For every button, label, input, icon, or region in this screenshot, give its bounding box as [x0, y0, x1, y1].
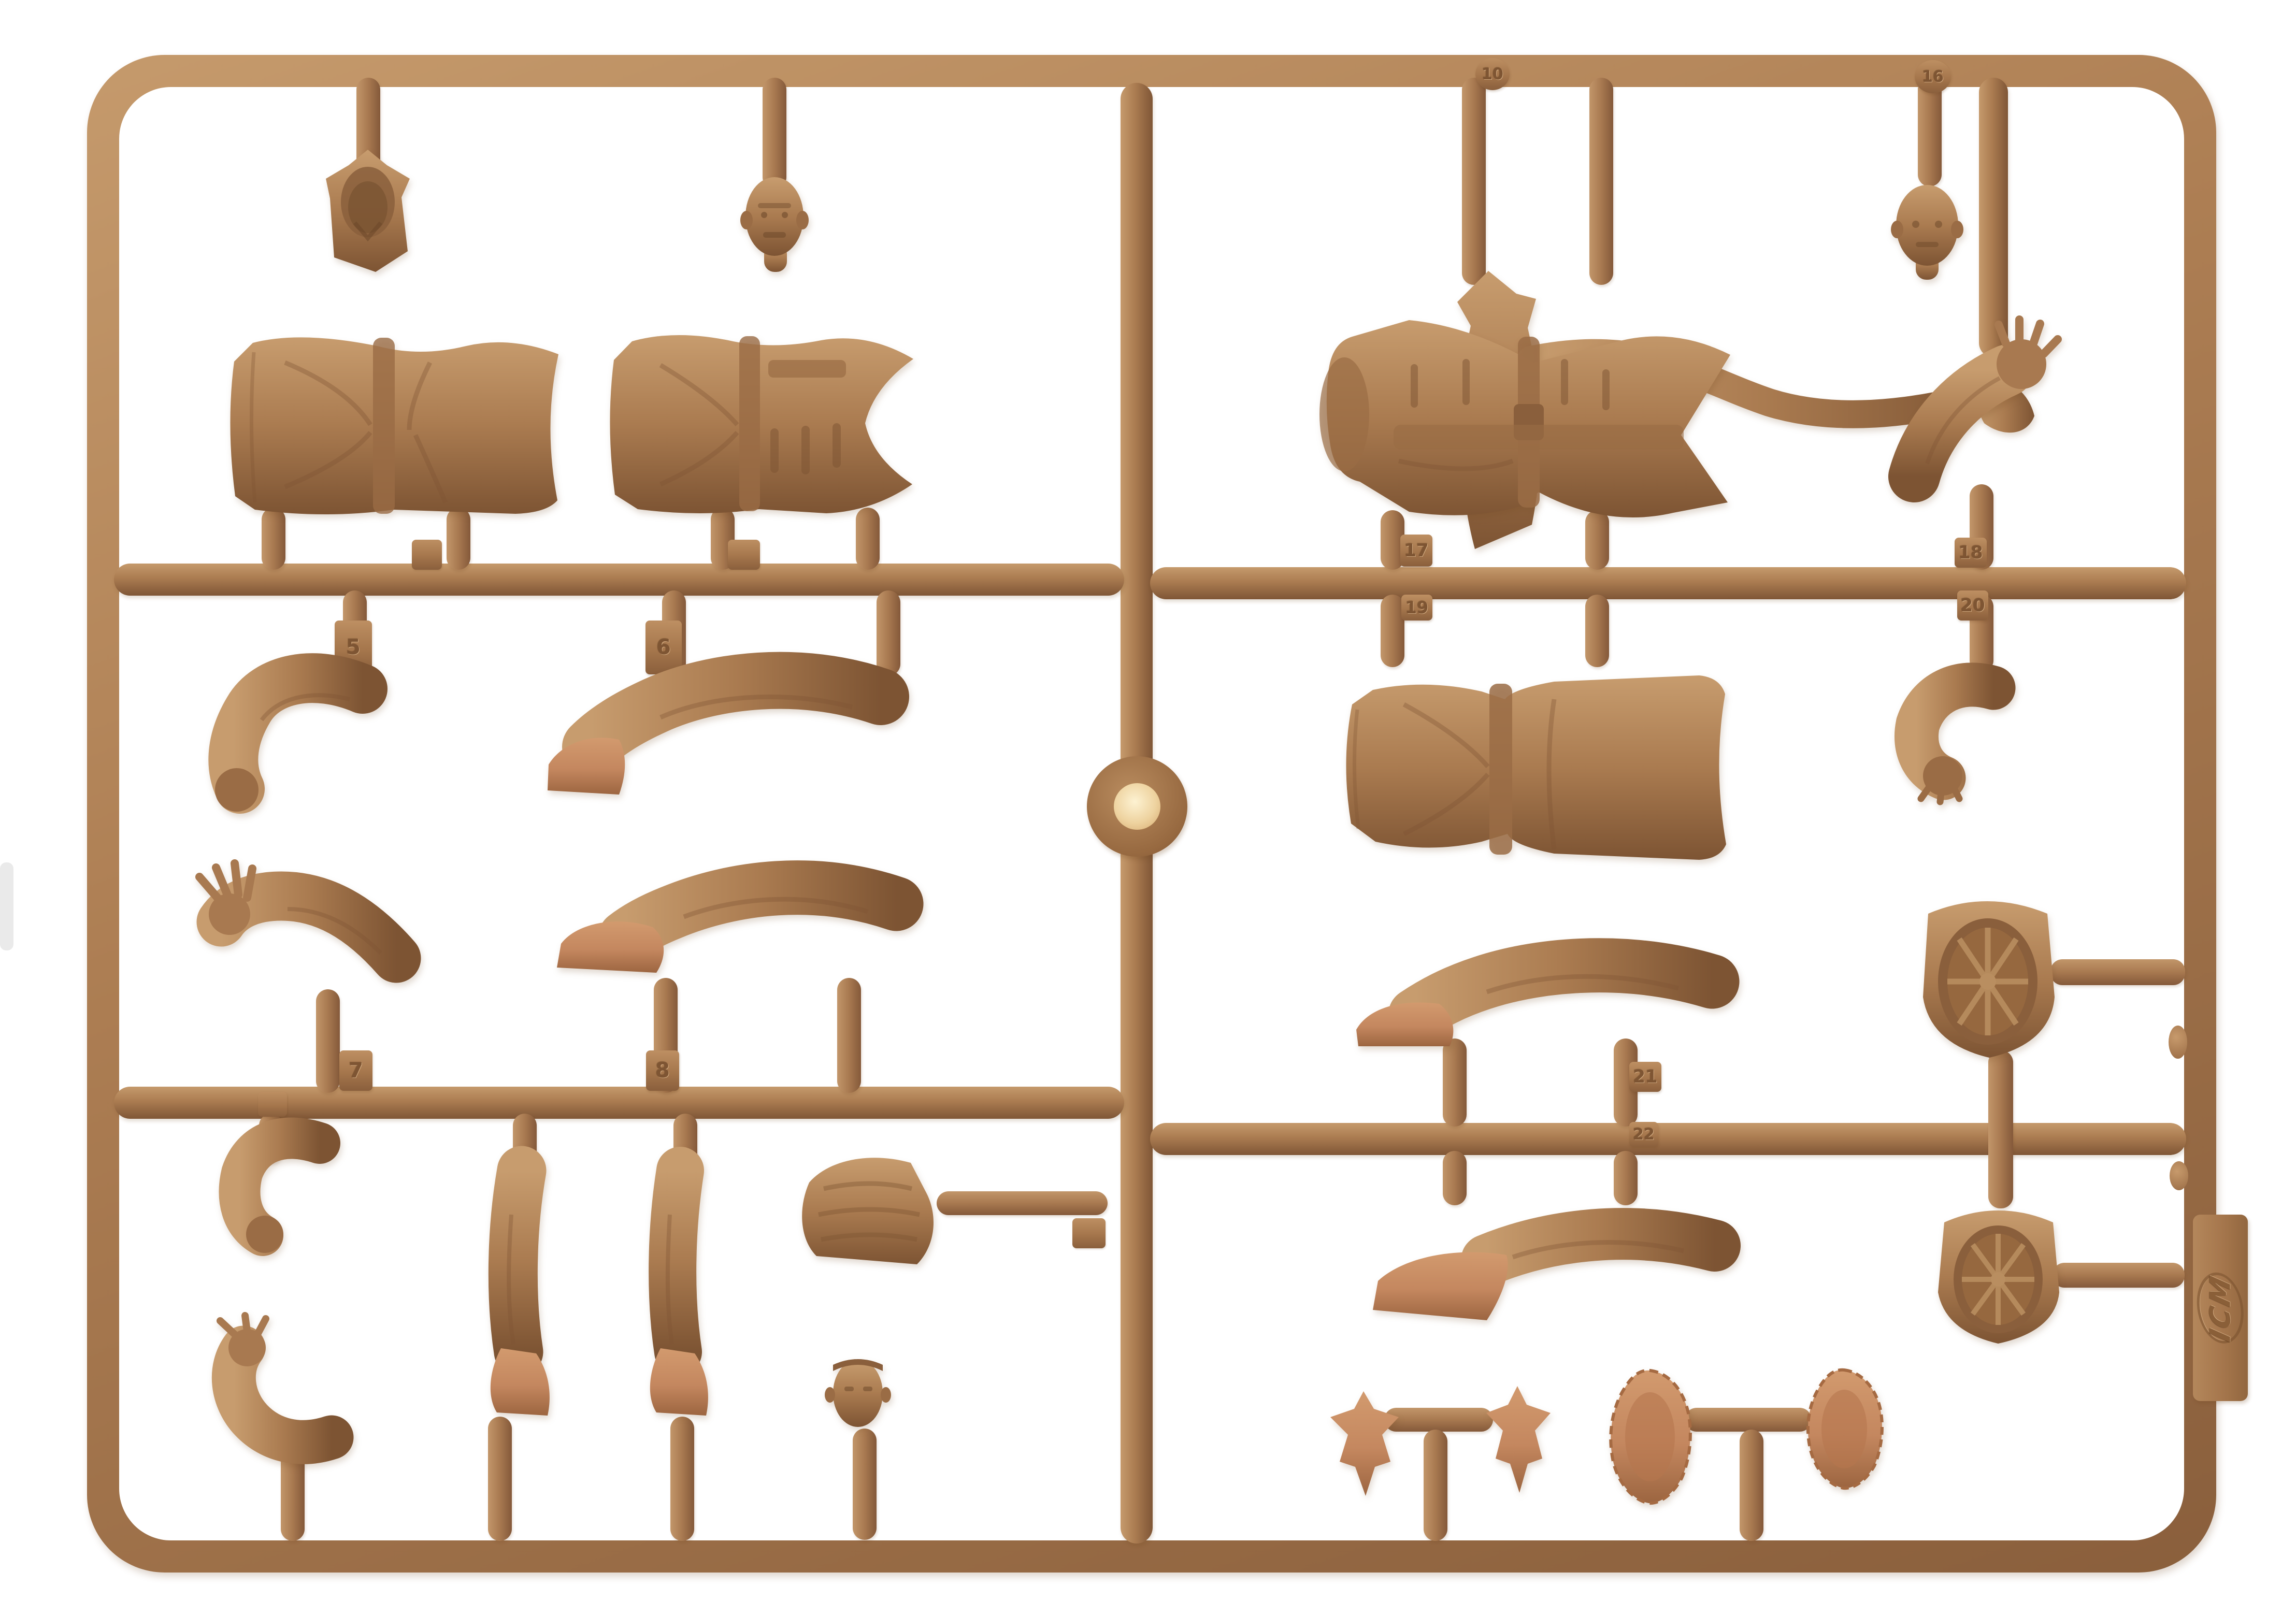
part-number-tab-20: 20	[1957, 590, 1988, 621]
part-number-label: 21	[1633, 1066, 1657, 1087]
injection-gate-center	[1114, 783, 1160, 830]
part-number-tab-21: 21	[1629, 1062, 1661, 1092]
left-rail-upper	[114, 564, 1124, 596]
runner	[2053, 1263, 2185, 1288]
part-number-label: 19	[1405, 598, 1429, 617]
part-number-label: 6	[656, 636, 671, 659]
runner	[1589, 78, 1613, 285]
runner	[670, 1417, 694, 1541]
runner	[853, 1429, 877, 1540]
part-arm-reaching	[199, 1321, 360, 1461]
part-small-bent-arm	[205, 1121, 345, 1248]
part-leg-with-boot-bent	[541, 658, 909, 813]
part-number-label: 8	[655, 1059, 670, 1083]
runner	[1462, 78, 1486, 285]
part-leg-horizontal	[1347, 927, 1735, 1051]
part-number-tab-7: 7	[339, 1050, 372, 1091]
part-bent-arm-sleeve	[205, 660, 389, 811]
icm-logo-tab: ICM	[2193, 1215, 2248, 1401]
runner	[1585, 595, 1609, 667]
part-number-label: 5	[346, 636, 361, 659]
part-forearm-glove	[1881, 658, 2020, 787]
part-number-tab-19: 19	[1401, 595, 1432, 621]
part-peaked-cap-1	[1912, 891, 2064, 1062]
part-number-tab-8: 8	[646, 1050, 679, 1091]
rail-mark-16: 16	[1915, 60, 1951, 93]
runner	[1685, 1408, 1812, 1432]
rail-mark-label: 16	[1922, 68, 1944, 86]
part-leg-boot-front-right	[640, 1152, 720, 1430]
part-small-head	[824, 1344, 894, 1437]
part-number-label: 20	[1960, 595, 1985, 616]
part-tunic-back	[223, 331, 559, 518]
part-eagle-insignia-2	[1484, 1383, 1554, 1497]
right-rail-lower	[1150, 1123, 2186, 1155]
icm-logo-text: ICM	[2204, 1271, 2237, 1344]
part-number-tab-blank	[258, 1092, 287, 1117]
part-number-tab-blank	[728, 540, 760, 570]
runner	[316, 989, 340, 1093]
part-greatcoat-front	[1337, 663, 1730, 870]
runner	[837, 978, 861, 1093]
part-number-tab-blank	[1072, 1218, 1106, 1248]
part-greatcoat-back	[1316, 306, 1730, 523]
runner	[1443, 1039, 1467, 1127]
part-leg-boot-front-left	[479, 1152, 562, 1430]
runner	[1918, 78, 1942, 186]
part-folded-coat	[793, 1152, 943, 1272]
part-oval-plate-1	[1606, 1367, 1694, 1507]
runner	[937, 1191, 1108, 1215]
part-number-label: 7	[349, 1059, 363, 1083]
part-head-bare	[738, 171, 811, 275]
icm-logo-oval: ICM	[2197, 1267, 2244, 1349]
part-oval-plate-2	[1803, 1367, 1886, 1492]
rail-mark-bump	[2170, 1161, 2188, 1190]
runner	[488, 1417, 512, 1541]
right-rail-upper	[1150, 567, 2186, 599]
rail-mark-10: 10	[1475, 58, 1510, 90]
part-arm-open-hand	[189, 852, 417, 1002]
part-arm-raised-palm	[1875, 324, 2072, 500]
photo-edge-smudge	[0, 862, 13, 950]
runner	[2050, 959, 2185, 985]
runner	[1443, 1151, 1467, 1205]
part-number-tab-blank	[412, 540, 442, 570]
part-boot-leg-horizontal	[1362, 1199, 1735, 1336]
runner	[1614, 1151, 1638, 1205]
injection-gate-disc	[1087, 756, 1187, 857]
part-peaked-cap-2	[1930, 1202, 2067, 1347]
part-head-bare-2	[1886, 179, 1969, 282]
part-eagle-insignia-1	[1326, 1388, 1404, 1499]
part-tunic-front	[604, 329, 914, 518]
sprue-photo: 5 6 7 8 17 19 18 20 21 22 10 16 ICM	[0, 0, 2296, 1601]
part-number-label: 17	[1404, 540, 1428, 561]
part-number-label: 22	[1633, 1126, 1655, 1144]
part-head-with-collar	[324, 148, 412, 275]
part-number-tab-22: 22	[1629, 1122, 1658, 1147]
part-leg-straight-boot	[547, 855, 917, 989]
runner	[1740, 1430, 1763, 1541]
runner	[1424, 1430, 1447, 1541]
rail-mark-label: 10	[1482, 65, 1503, 83]
runner	[1988, 1050, 2013, 1208]
rail-mark-bump	[2169, 1026, 2187, 1059]
